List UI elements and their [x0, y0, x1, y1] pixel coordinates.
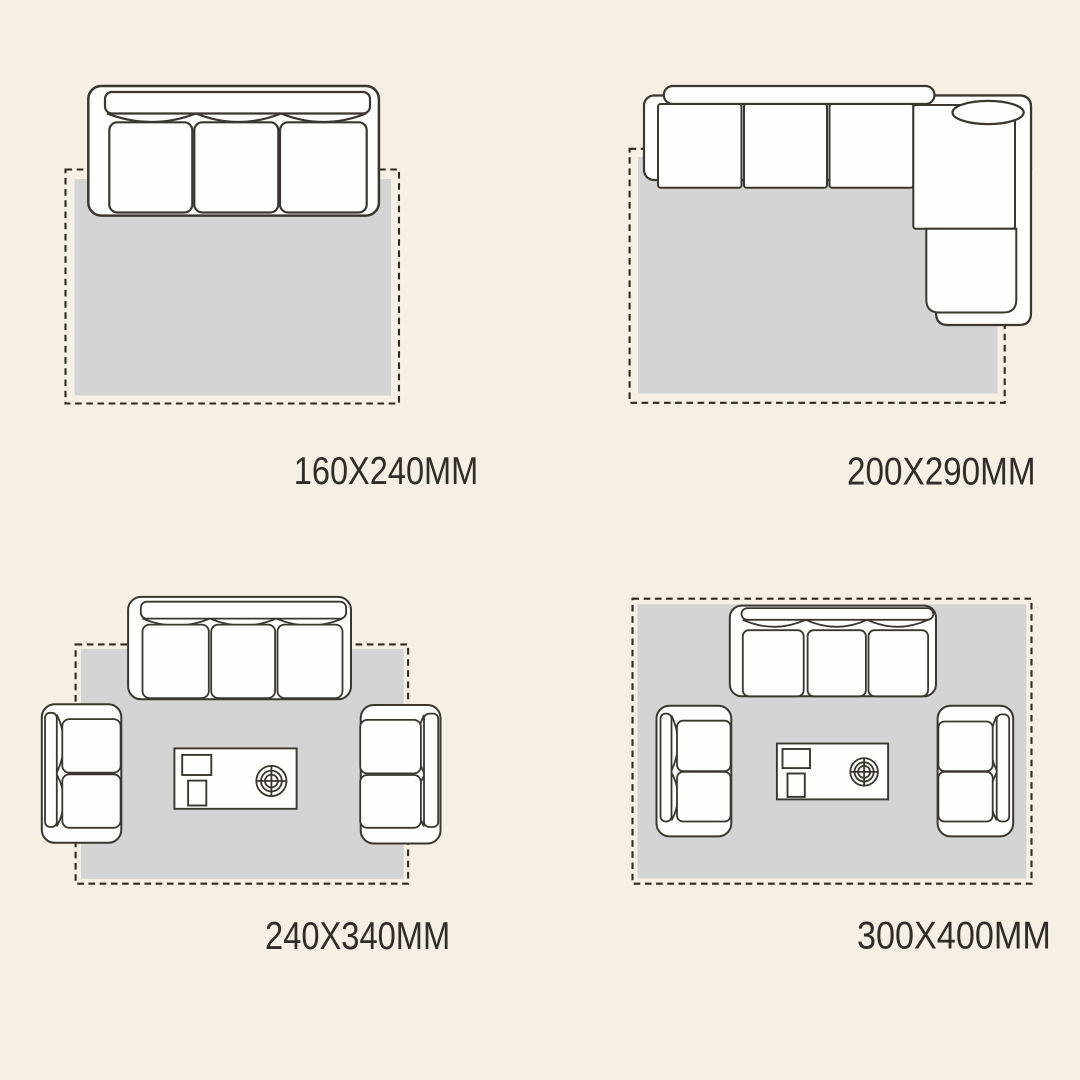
svg-text:300X400MM: 300X400MM — [857, 915, 1051, 958]
svg-text:240X340MM: 240X340MM — [265, 915, 450, 958]
svg-text:160X240MM: 160X240MM — [294, 450, 479, 493]
svg-text:200X290MM: 200X290MM — [847, 451, 1036, 494]
